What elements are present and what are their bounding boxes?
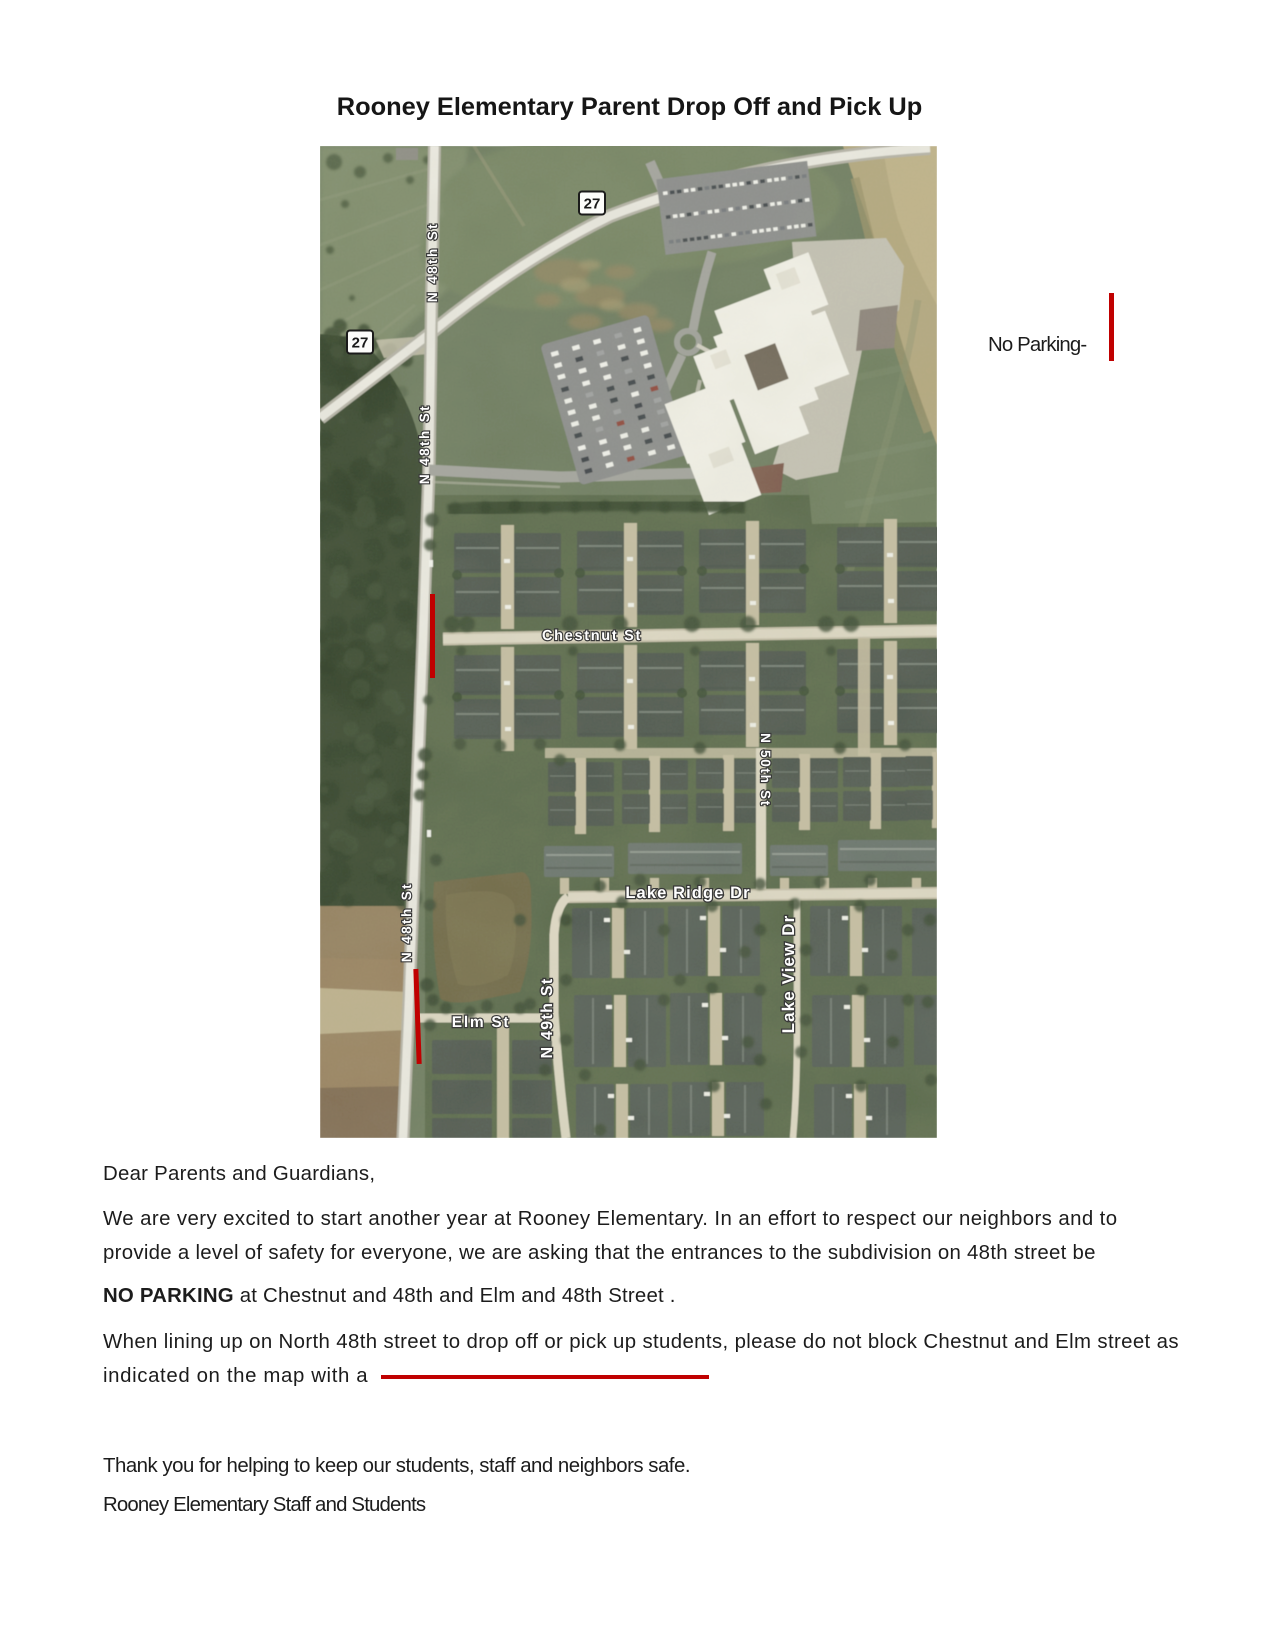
- svg-text:Elm St: Elm St: [452, 1014, 510, 1031]
- svg-text:N 49th St: N 49th St: [539, 977, 556, 1058]
- svg-text:27: 27: [584, 196, 601, 213]
- svg-text:N 50th St: N 50th St: [758, 733, 773, 807]
- svg-text:27: 27: [352, 335, 369, 352]
- svg-text:N 48th St: N 48th St: [425, 222, 440, 302]
- svg-text:Lake View Dr: Lake View Dr: [779, 915, 798, 1034]
- svg-text:N 48th St: N 48th St: [399, 882, 414, 962]
- svg-text:Lake Ridge Dr: Lake Ridge Dr: [625, 884, 750, 902]
- svg-text:N 48th St: N 48th St: [417, 404, 432, 484]
- svg-text:Chestnut St: Chestnut St: [542, 628, 642, 644]
